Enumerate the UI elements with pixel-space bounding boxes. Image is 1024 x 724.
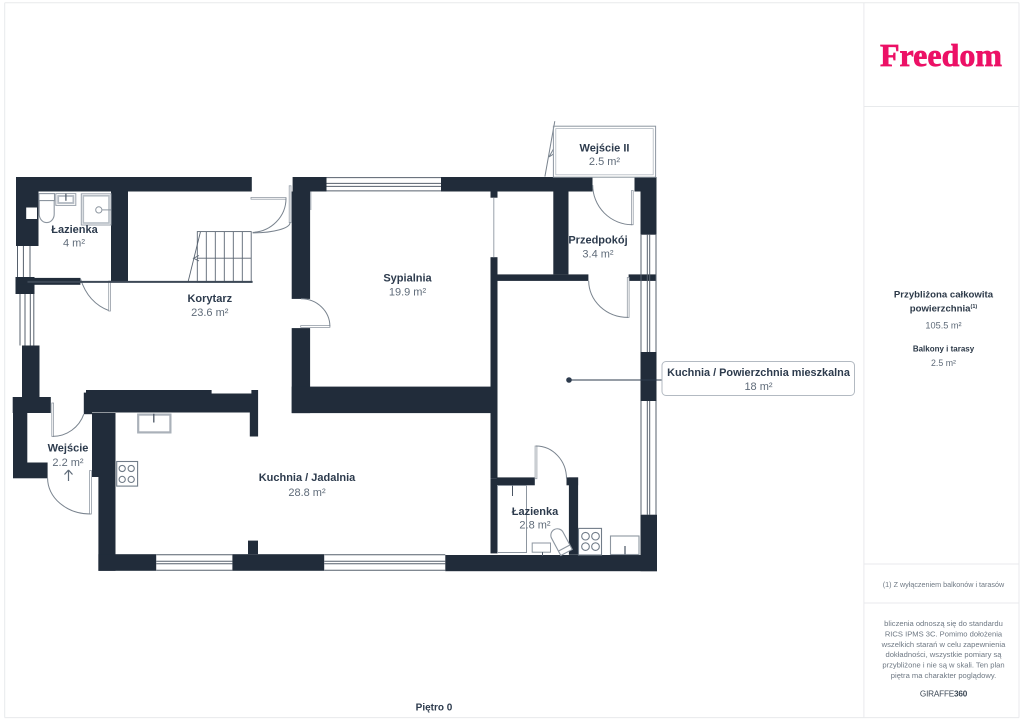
svg-text:Łazienka: Łazienka	[512, 506, 559, 518]
svg-text:Przedpokój: Przedpokój	[568, 234, 627, 246]
svg-text:powierzchnia(1): powierzchnia(1)	[910, 304, 978, 315]
svg-text:Łazienka: Łazienka	[51, 224, 98, 236]
svg-text:Sypialnia: Sypialnia	[383, 272, 432, 284]
svg-text:23.6 m²: 23.6 m²	[191, 307, 229, 319]
svg-text:18 m²: 18 m²	[744, 381, 772, 393]
svg-text:2.8 m²: 2.8 m²	[519, 520, 551, 532]
svg-text:28.8 m²: 28.8 m²	[288, 487, 326, 499]
svg-text:bliczenia odnoszą się do stand: bliczenia odnoszą się do standardu	[884, 619, 1003, 628]
svg-text:(1) Z wyłączeniem balkonów i t: (1) Z wyłączeniem balkonów i tarasów	[883, 580, 1005, 589]
svg-text:2.5 m²: 2.5 m²	[589, 156, 621, 168]
svg-text:dokładności, wszystkie pomiary: dokładności, wszystkie pomiary są	[885, 650, 1002, 659]
svg-text:19.9 m²: 19.9 m²	[389, 287, 427, 299]
svg-text:2.2 m²: 2.2 m²	[52, 457, 84, 469]
svg-text:RICS IPMS 3C. Pomimo dołożenia: RICS IPMS 3C. Pomimo dołożenia	[885, 629, 1003, 638]
svg-text:Wejście: Wejście	[48, 442, 89, 454]
svg-text:Wejście II: Wejście II	[580, 142, 630, 154]
svg-text:wszelkich starań w celu zapewn: wszelkich starań w celu zapewnienia	[881, 640, 1006, 649]
svg-text:2.5 m²: 2.5 m²	[931, 358, 956, 368]
svg-text:Kuchnia / Jadalnia: Kuchnia / Jadalnia	[259, 472, 356, 484]
svg-text:3.4 m²: 3.4 m²	[582, 249, 614, 261]
svg-text:GIRAFFE360: GIRAFFE360	[920, 690, 968, 699]
svg-text:Przybliżona całkowita: Przybliżona całkowita	[894, 290, 994, 301]
svg-text:Kuchnia / Powierzchnia mieszka: Kuchnia / Powierzchnia mieszkalna	[667, 367, 851, 379]
svg-text:Piętro 0: Piętro 0	[416, 703, 453, 714]
svg-text:Korytarz: Korytarz	[187, 293, 232, 305]
svg-text:Balkony i tarasy: Balkony i tarasy	[913, 345, 975, 354]
svg-text:piętra ma charakter poglądowy.: piętra ma charakter poglądowy.	[891, 671, 996, 680]
svg-text:105.5 m²: 105.5 m²	[925, 321, 961, 331]
svg-text:Freedom: Freedom	[880, 37, 1002, 73]
svg-text:4 m²: 4 m²	[63, 238, 85, 250]
svg-text:przybliżone i nie są w skali.: przybliżone i nie są w skali. Ten plan	[882, 661, 1004, 670]
